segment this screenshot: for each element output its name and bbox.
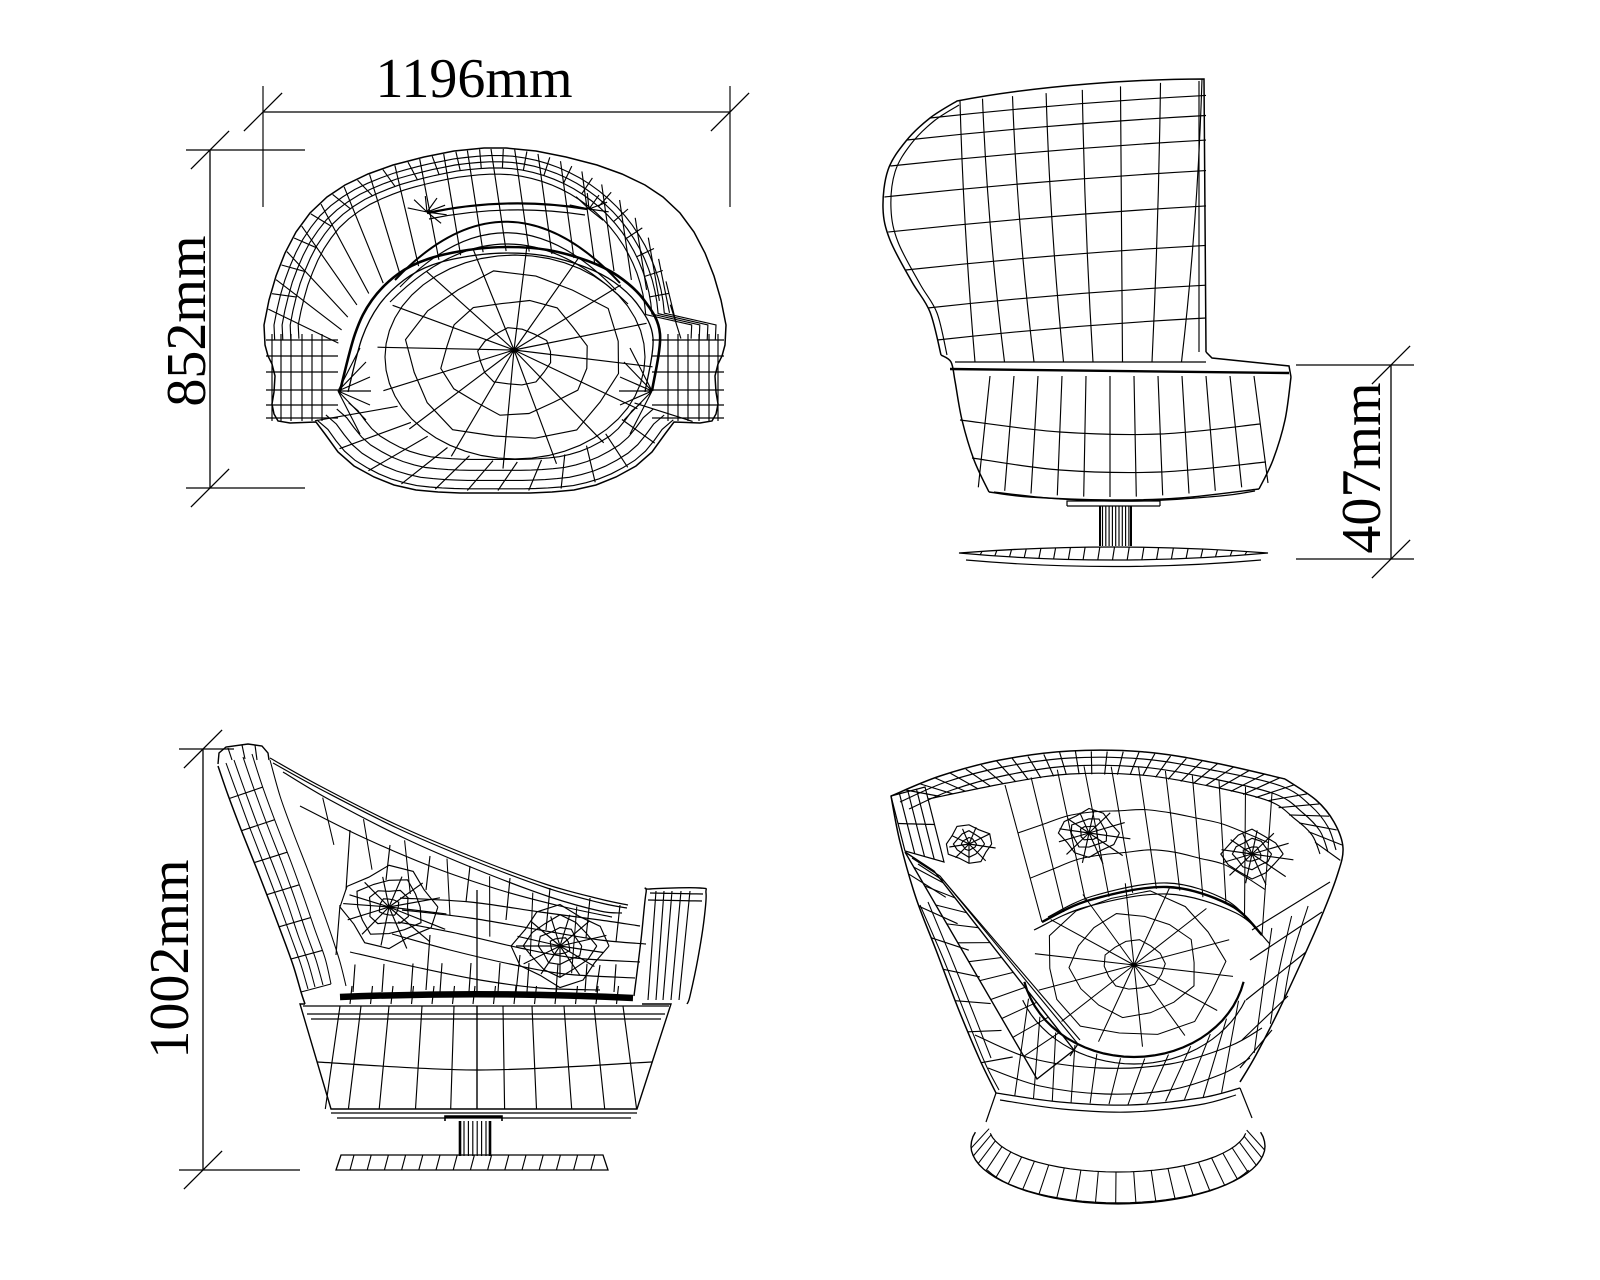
svg-text:407mm: 407mm: [1331, 382, 1393, 553]
svg-text:1196mm: 1196mm: [375, 48, 572, 110]
svg-text:852mm: 852mm: [156, 235, 218, 406]
svg-text:1002mm: 1002mm: [139, 859, 201, 1058]
